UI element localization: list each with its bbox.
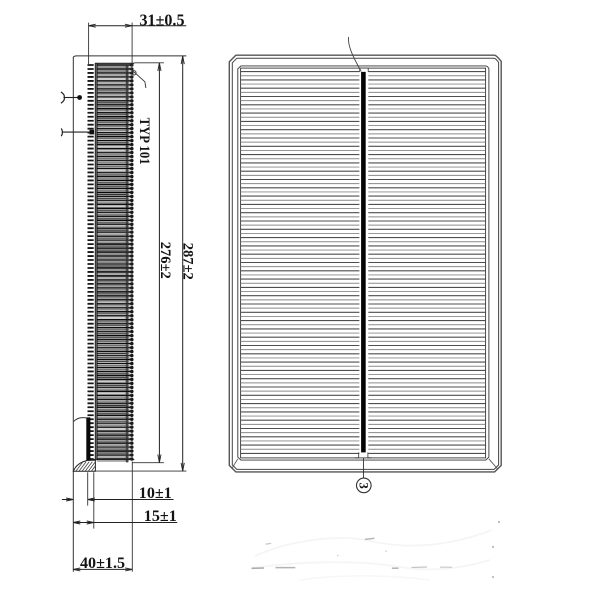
svg-text:40±1.5: 40±1.5 bbox=[80, 555, 125, 572]
svg-text:3: 3 bbox=[357, 483, 371, 489]
svg-text:31±0.5: 31±0.5 bbox=[140, 10, 185, 29]
svg-text:276±2: 276±2 bbox=[157, 242, 173, 279]
svg-text:10±1: 10±1 bbox=[139, 485, 172, 502]
svg-text:TYP 101: TYP 101 bbox=[136, 118, 152, 165]
svg-text:287±2: 287±2 bbox=[179, 243, 195, 280]
svg-text:15±1: 15±1 bbox=[144, 508, 177, 525]
